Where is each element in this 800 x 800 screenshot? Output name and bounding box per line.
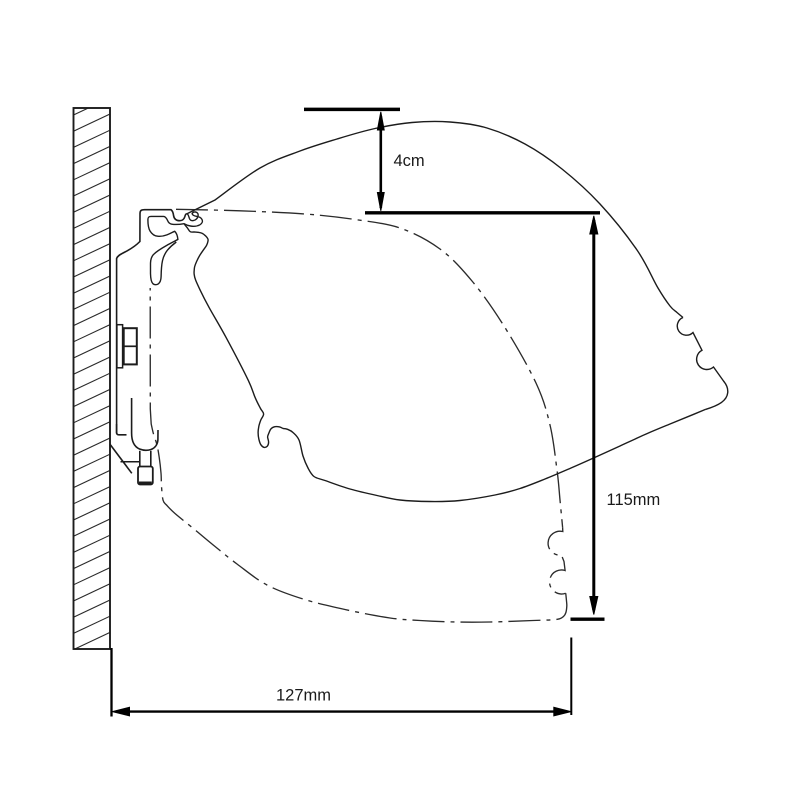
svg-text:115mm: 115mm (607, 491, 661, 509)
svg-text:127mm: 127mm (276, 687, 331, 705)
svg-text:4cm: 4cm (394, 152, 425, 170)
